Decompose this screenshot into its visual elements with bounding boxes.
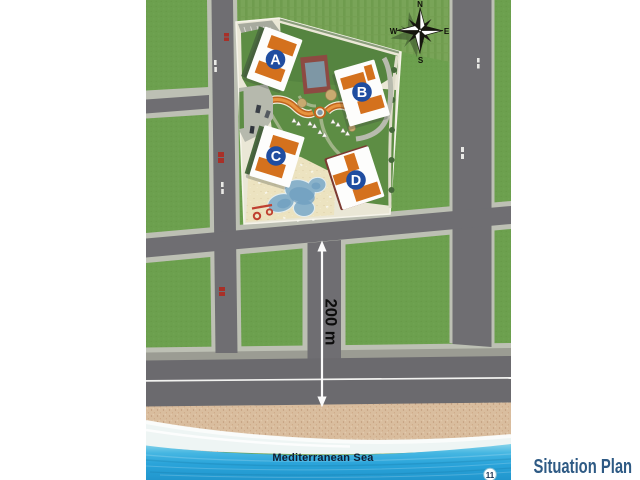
svg-text:E: E	[444, 27, 450, 36]
svg-text:W: W	[390, 27, 398, 36]
svg-text:C: C	[271, 149, 282, 165]
svg-text:D: D	[351, 173, 361, 189]
svg-text:Situation Plan: Situation Plan	[534, 455, 633, 478]
svg-text:B: B	[357, 85, 367, 101]
svg-text:A: A	[270, 53, 281, 69]
svg-text:Mediterranean Sea: Mediterranean Sea	[272, 452, 374, 464]
svg-text:11: 11	[486, 471, 495, 480]
svg-text:N: N	[417, 0, 423, 9]
svg-text:200 m: 200 m	[322, 299, 340, 346]
svg-text:S: S	[418, 56, 424, 65]
